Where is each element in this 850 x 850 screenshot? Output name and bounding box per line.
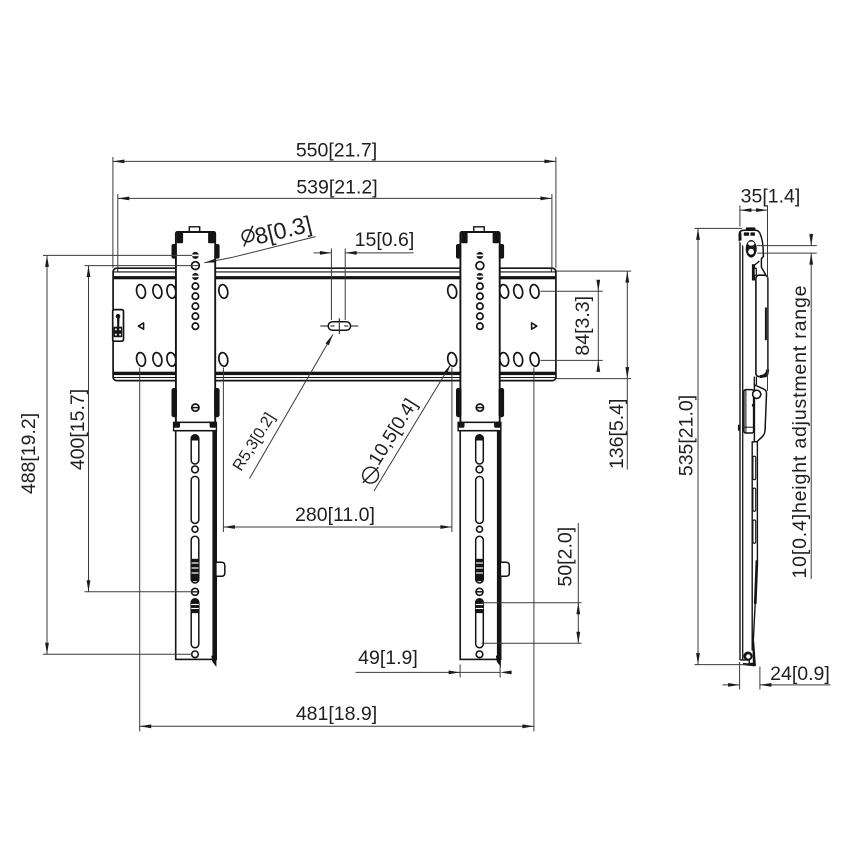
svg-text:50[2.0]: 50[2.0] xyxy=(555,527,577,587)
svg-text:49[1.9]: 49[1.9] xyxy=(358,647,418,669)
svg-text:280[11.0]: 280[11.0] xyxy=(295,504,375,526)
svg-text:35[1.4]: 35[1.4] xyxy=(741,186,801,208)
svg-text:15[0.6]: 15[0.6] xyxy=(355,229,415,251)
svg-text:535[21.0]: 535[21.0] xyxy=(676,395,698,476)
svg-text:481[18.9]: 481[18.9] xyxy=(296,703,377,725)
svg-text:10[0.4]height adjustment range: 10[0.4]height adjustment range xyxy=(789,286,811,579)
svg-text:24[0.9]: 24[0.9] xyxy=(770,663,830,685)
svg-text:84[3.3]: 84[3.3] xyxy=(572,296,594,356)
svg-text:550[21.7]: 550[21.7] xyxy=(296,140,377,162)
svg-text:400[15.7]: 400[15.7] xyxy=(67,389,89,470)
svg-text:539[21.2]: 539[21.2] xyxy=(296,177,377,199)
svg-text:136[5.4]: 136[5.4] xyxy=(606,399,628,469)
svg-text:488[19.2]: 488[19.2] xyxy=(18,413,40,494)
